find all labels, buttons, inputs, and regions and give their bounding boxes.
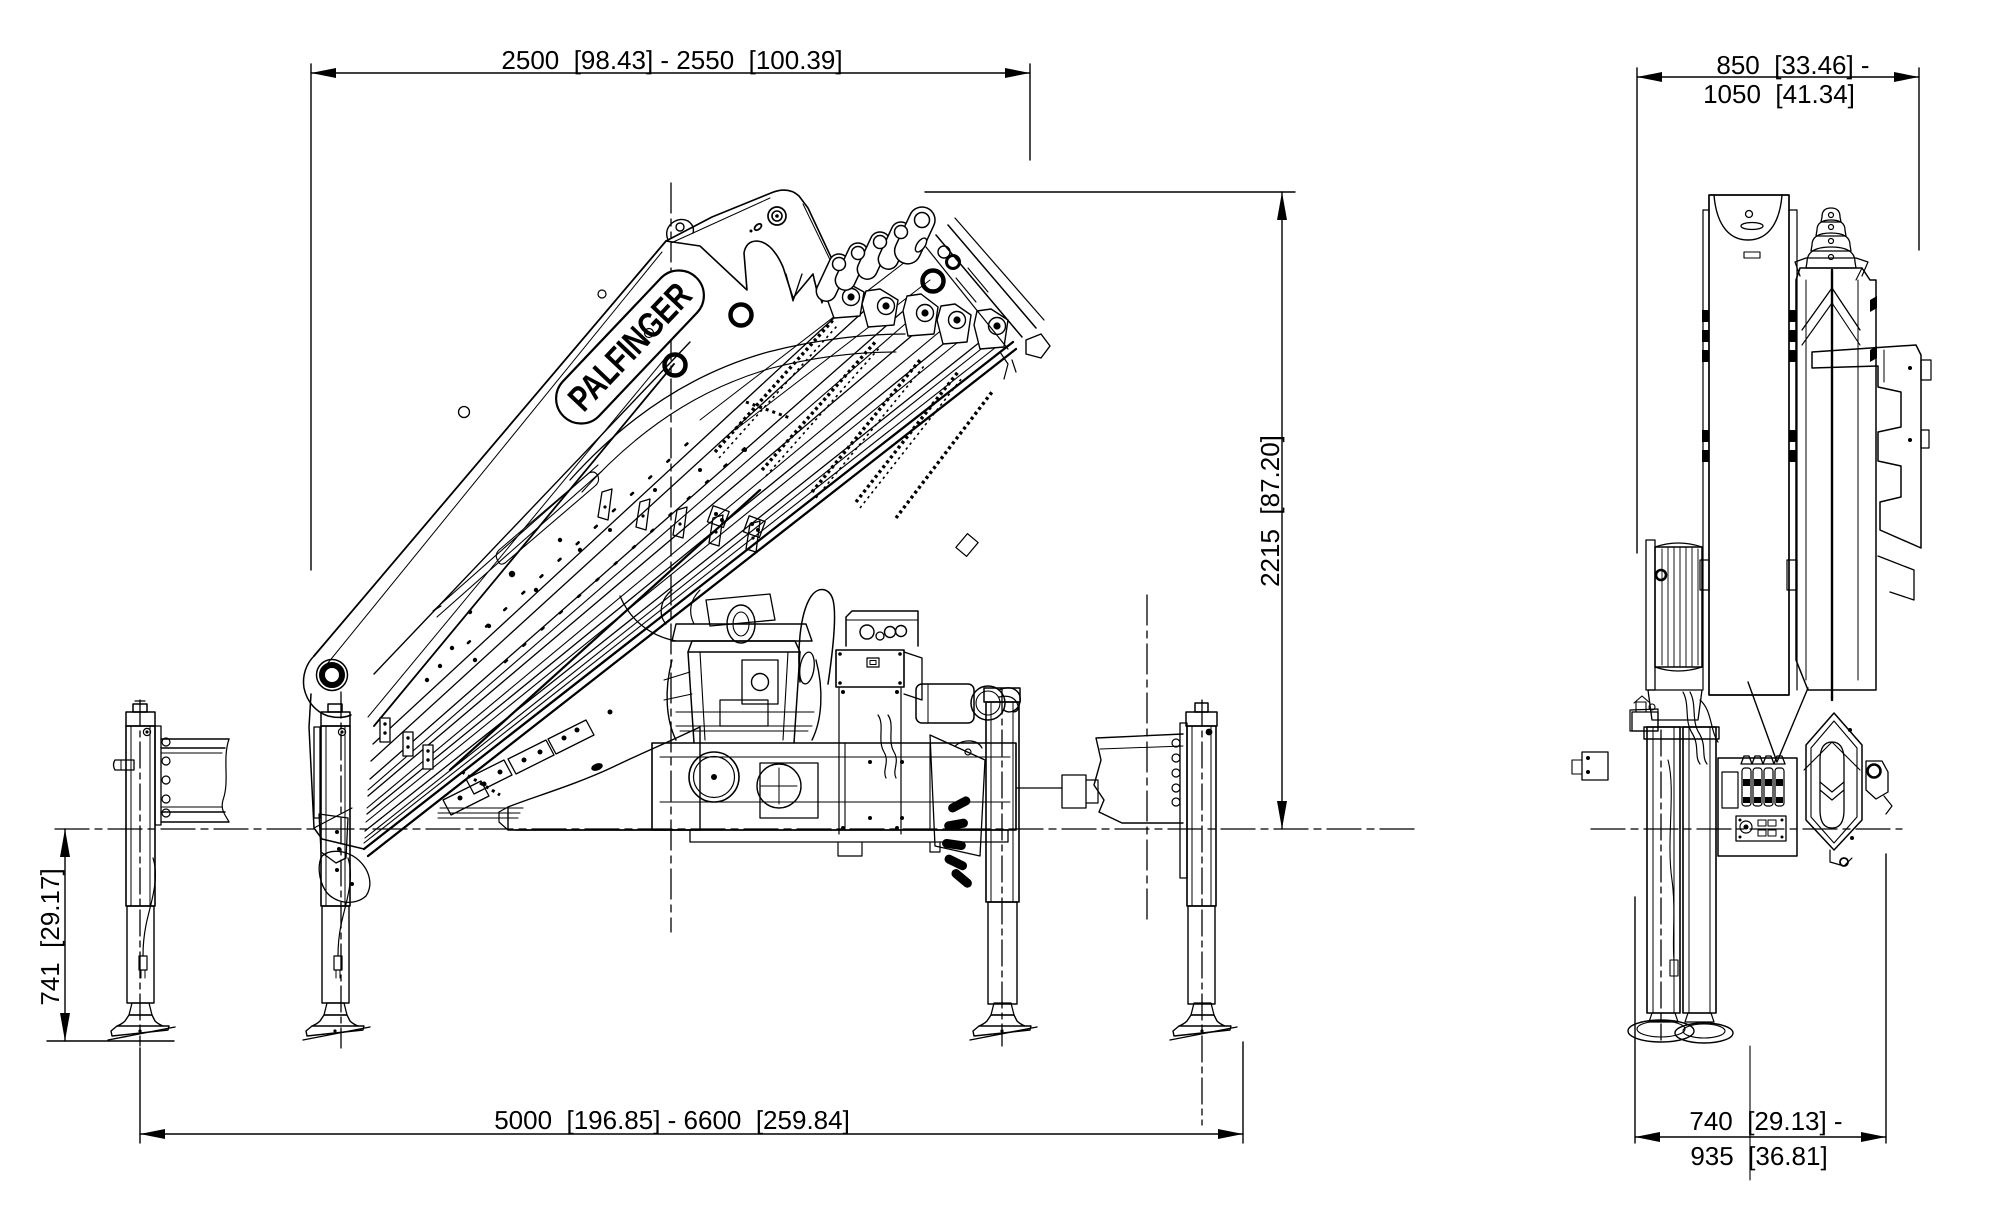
svg-text:740 [29.13] -: 740 [29.13] - — [1689, 1106, 1842, 1136]
svg-text:2500 [98.43] - 2550 [100.39]: 2500 [98.43] - 2550 [100.39] — [501, 45, 842, 75]
svg-text:PALFINGER: PALFINGER — [560, 275, 700, 419]
svg-text:741 [29.17]: 741 [29.17] — [35, 868, 65, 1005]
svg-text:2215 [87.20]: 2215 [87.20] — [1255, 435, 1285, 587]
svg-text:935 [36.81]: 935 [36.81] — [1690, 1141, 1827, 1171]
svg-text:5000 [196.85] - 6600 [259.84: 5000 [196.85] - 6600 [259.84] — [494, 1105, 850, 1135]
svg-text:1050 [41.34]: 1050 [41.34] — [1703, 79, 1855, 109]
svg-text:850 [33.46] -: 850 [33.46] - — [1716, 50, 1869, 80]
